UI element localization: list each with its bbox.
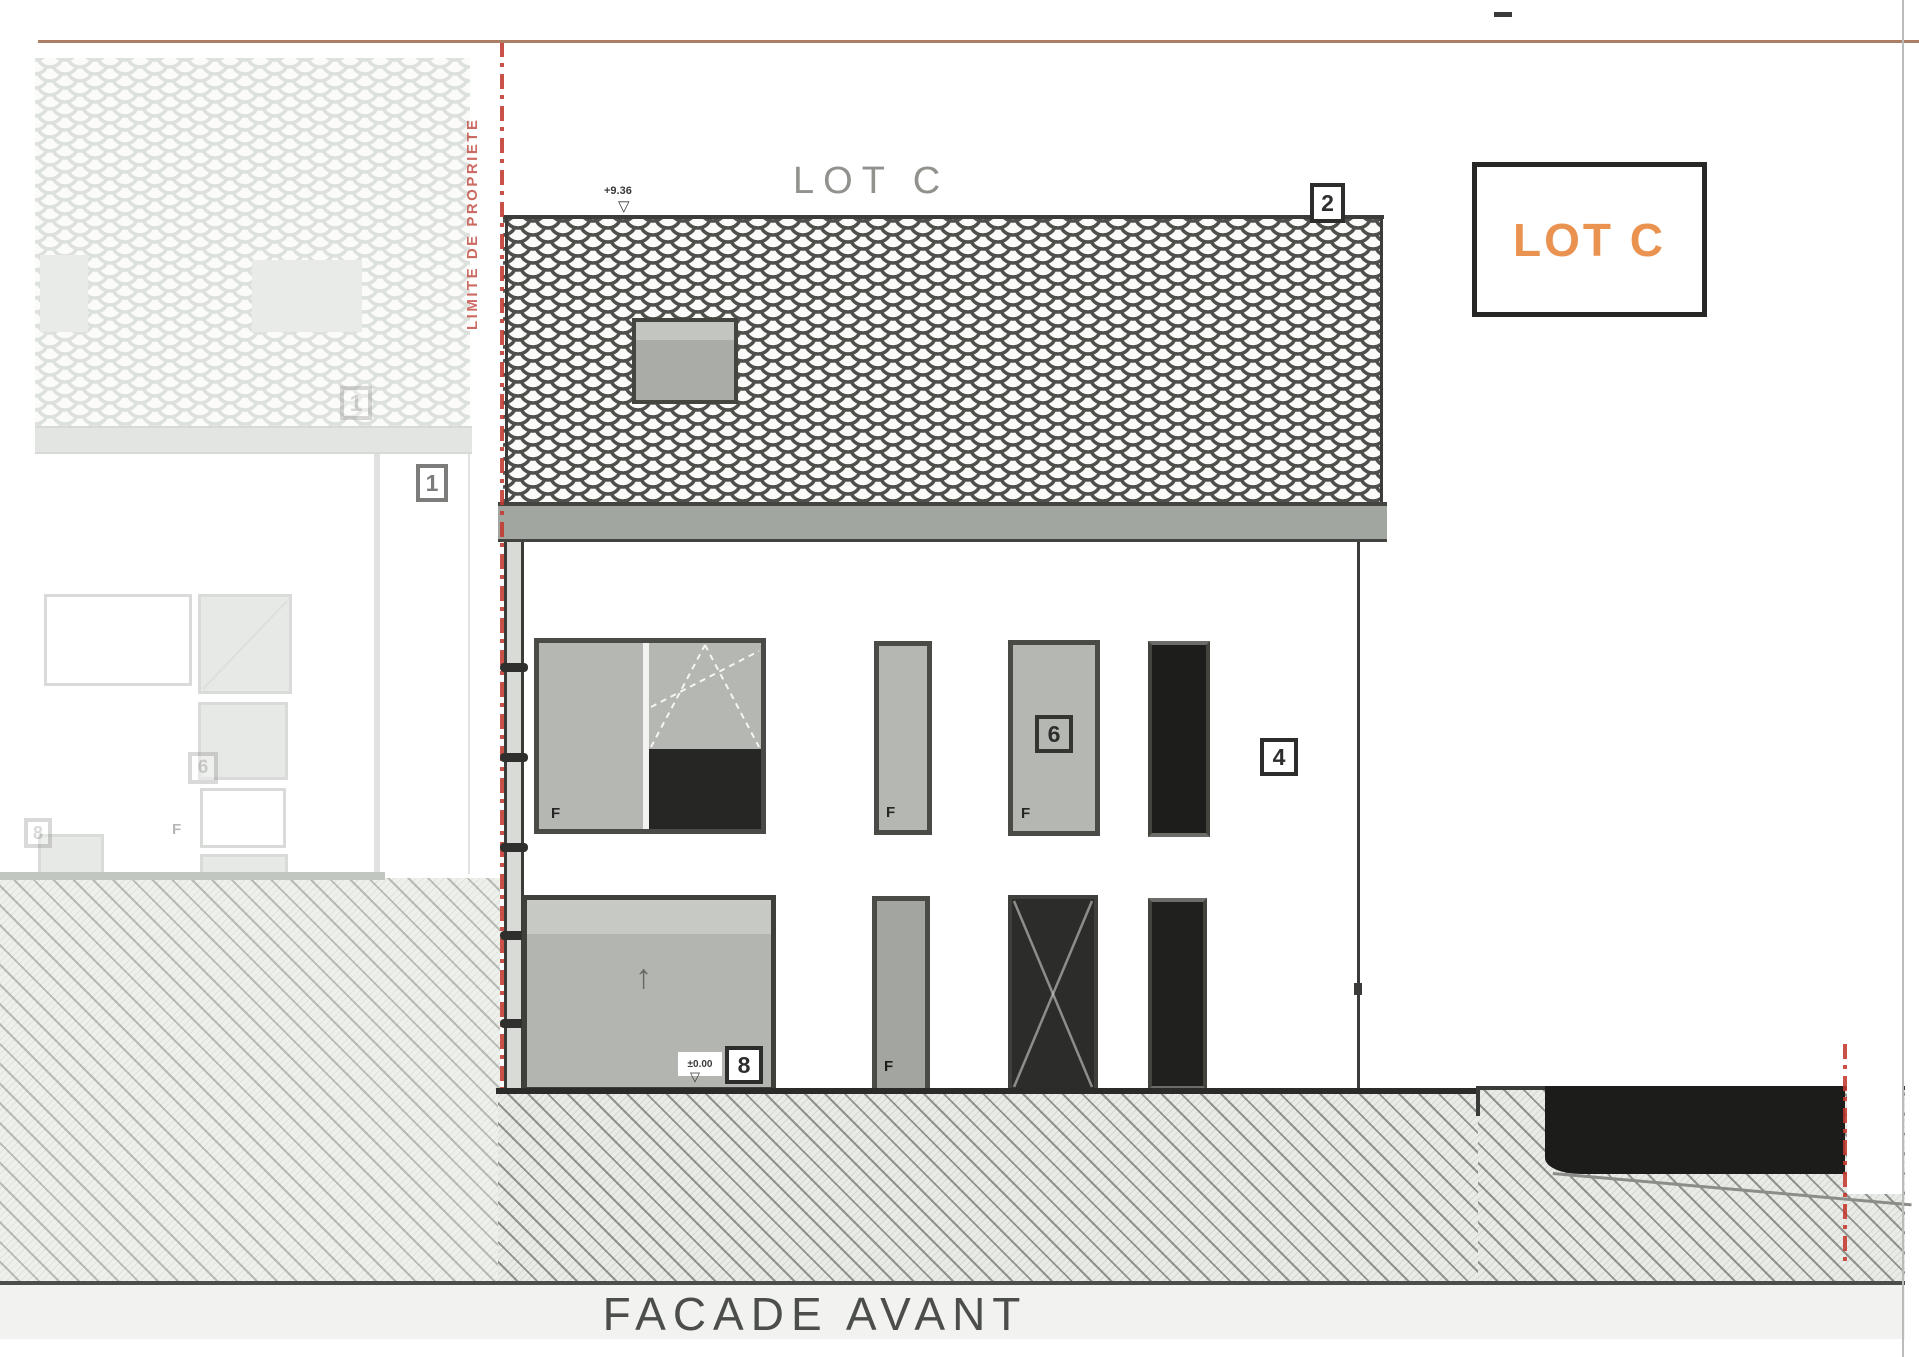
property-boundary-text: LIMITE DE PROPRIETE	[464, 50, 481, 330]
marker-label: 1	[426, 470, 439, 497]
adjacent-roof-window	[40, 255, 88, 332]
window-with-marker-6: 6 F	[1008, 640, 1100, 836]
downpipe	[504, 542, 524, 1092]
adjacent-eaves-band	[35, 426, 472, 454]
property-boundary-line-right	[1843, 1044, 1847, 1262]
roof-left-edge	[505, 219, 508, 502]
marker-6-faint: 6	[188, 752, 218, 784]
marker-label: 4	[1273, 744, 1286, 771]
marker-1-faint: 1	[340, 386, 372, 420]
marker-1: 1	[416, 464, 448, 502]
scan-right-edge	[1902, 0, 1904, 1357]
adjacent-window	[198, 594, 292, 694]
scan-top-mark	[1494, 12, 1512, 17]
fixed-window-label: F	[884, 1059, 893, 1074]
adjacent-roof-tiles	[35, 58, 470, 426]
adjacent-window	[44, 594, 192, 686]
window-large-upper: F	[534, 638, 766, 834]
door-x-lines	[1012, 899, 1094, 1089]
lot-legend-box: LOT C	[1472, 162, 1707, 317]
marker-4: 4	[1260, 738, 1298, 776]
drawing-title: FACADE AVANT	[300, 1287, 1330, 1341]
marker-label: 8	[33, 823, 43, 844]
entrance-door	[1008, 895, 1098, 1093]
fixed-window-label: F	[886, 805, 895, 820]
adjacent-wall-edge	[468, 454, 470, 874]
marker-8-faint: 8	[24, 818, 52, 848]
wall-right-edge	[1357, 542, 1360, 1093]
fixed-window-label: F	[551, 806, 560, 821]
fixed-window-label: F	[172, 822, 181, 837]
window-dark-upper	[1148, 641, 1210, 837]
terrain-cut-white	[1847, 1086, 1903, 1194]
ground-edge-left	[0, 872, 385, 880]
window-dark-pane	[649, 749, 761, 829]
marker-label: 6	[1048, 721, 1061, 748]
gutter-band	[498, 502, 1387, 542]
adjacent-window	[200, 788, 286, 848]
ridge-level-triangle-icon: ▽	[618, 199, 630, 214]
scan-top-line	[38, 40, 1919, 43]
marker-6: 6	[1035, 715, 1073, 753]
marker-label: 1	[350, 390, 363, 417]
ground-level-chip: ±0.00	[678, 1052, 722, 1076]
downpipe-bracket	[500, 663, 528, 672]
roof-ridge-line	[503, 215, 1384, 219]
dark-retaining-block	[1545, 1086, 1845, 1174]
roof-skylight	[632, 318, 738, 404]
marker-label: 2	[1321, 190, 1334, 217]
window-narrow-upper: F	[874, 641, 932, 835]
adjacent-roof-window	[252, 260, 362, 332]
marker-label: 6	[198, 757, 209, 779]
roof-right-edge	[1380, 219, 1383, 502]
ground-hatch-left	[0, 878, 500, 1283]
marker-8: 8	[725, 1046, 763, 1084]
ground-level-triangle-icon: ▽	[690, 1070, 700, 1083]
marker-label: 8	[738, 1052, 751, 1079]
garage-arrow-icon: ↑	[635, 958, 652, 997]
ground-hatch-main	[498, 1094, 1480, 1283]
platform-corner-edge	[1476, 1086, 1480, 1116]
ground-level-value: ±0.00	[688, 1059, 713, 1070]
downpipe-bracket	[500, 843, 528, 852]
marker-2: 2	[1310, 183, 1345, 223]
ridge-level-value: +9.36	[604, 185, 632, 197]
skylight-top-band	[636, 322, 734, 340]
downpipe-bracket	[500, 753, 528, 762]
lot-title: LOT C	[793, 160, 949, 203]
wall-edge-tick	[1354, 983, 1362, 995]
door-narrow-lower: F	[872, 896, 930, 1093]
garage-door-top-band	[527, 900, 771, 934]
lot-legend-label: LOT C	[1513, 213, 1666, 267]
facade-drawing-page: 1 6 8 F +9.36 ▽ 2 LOT C LOT C LIMITE DE …	[0, 0, 1919, 1357]
fixed-window-label: F	[1021, 806, 1030, 821]
window-dark-lower	[1148, 898, 1207, 1090]
opening-direction-lines	[649, 643, 761, 749]
adjacent-downpipe	[374, 454, 380, 874]
